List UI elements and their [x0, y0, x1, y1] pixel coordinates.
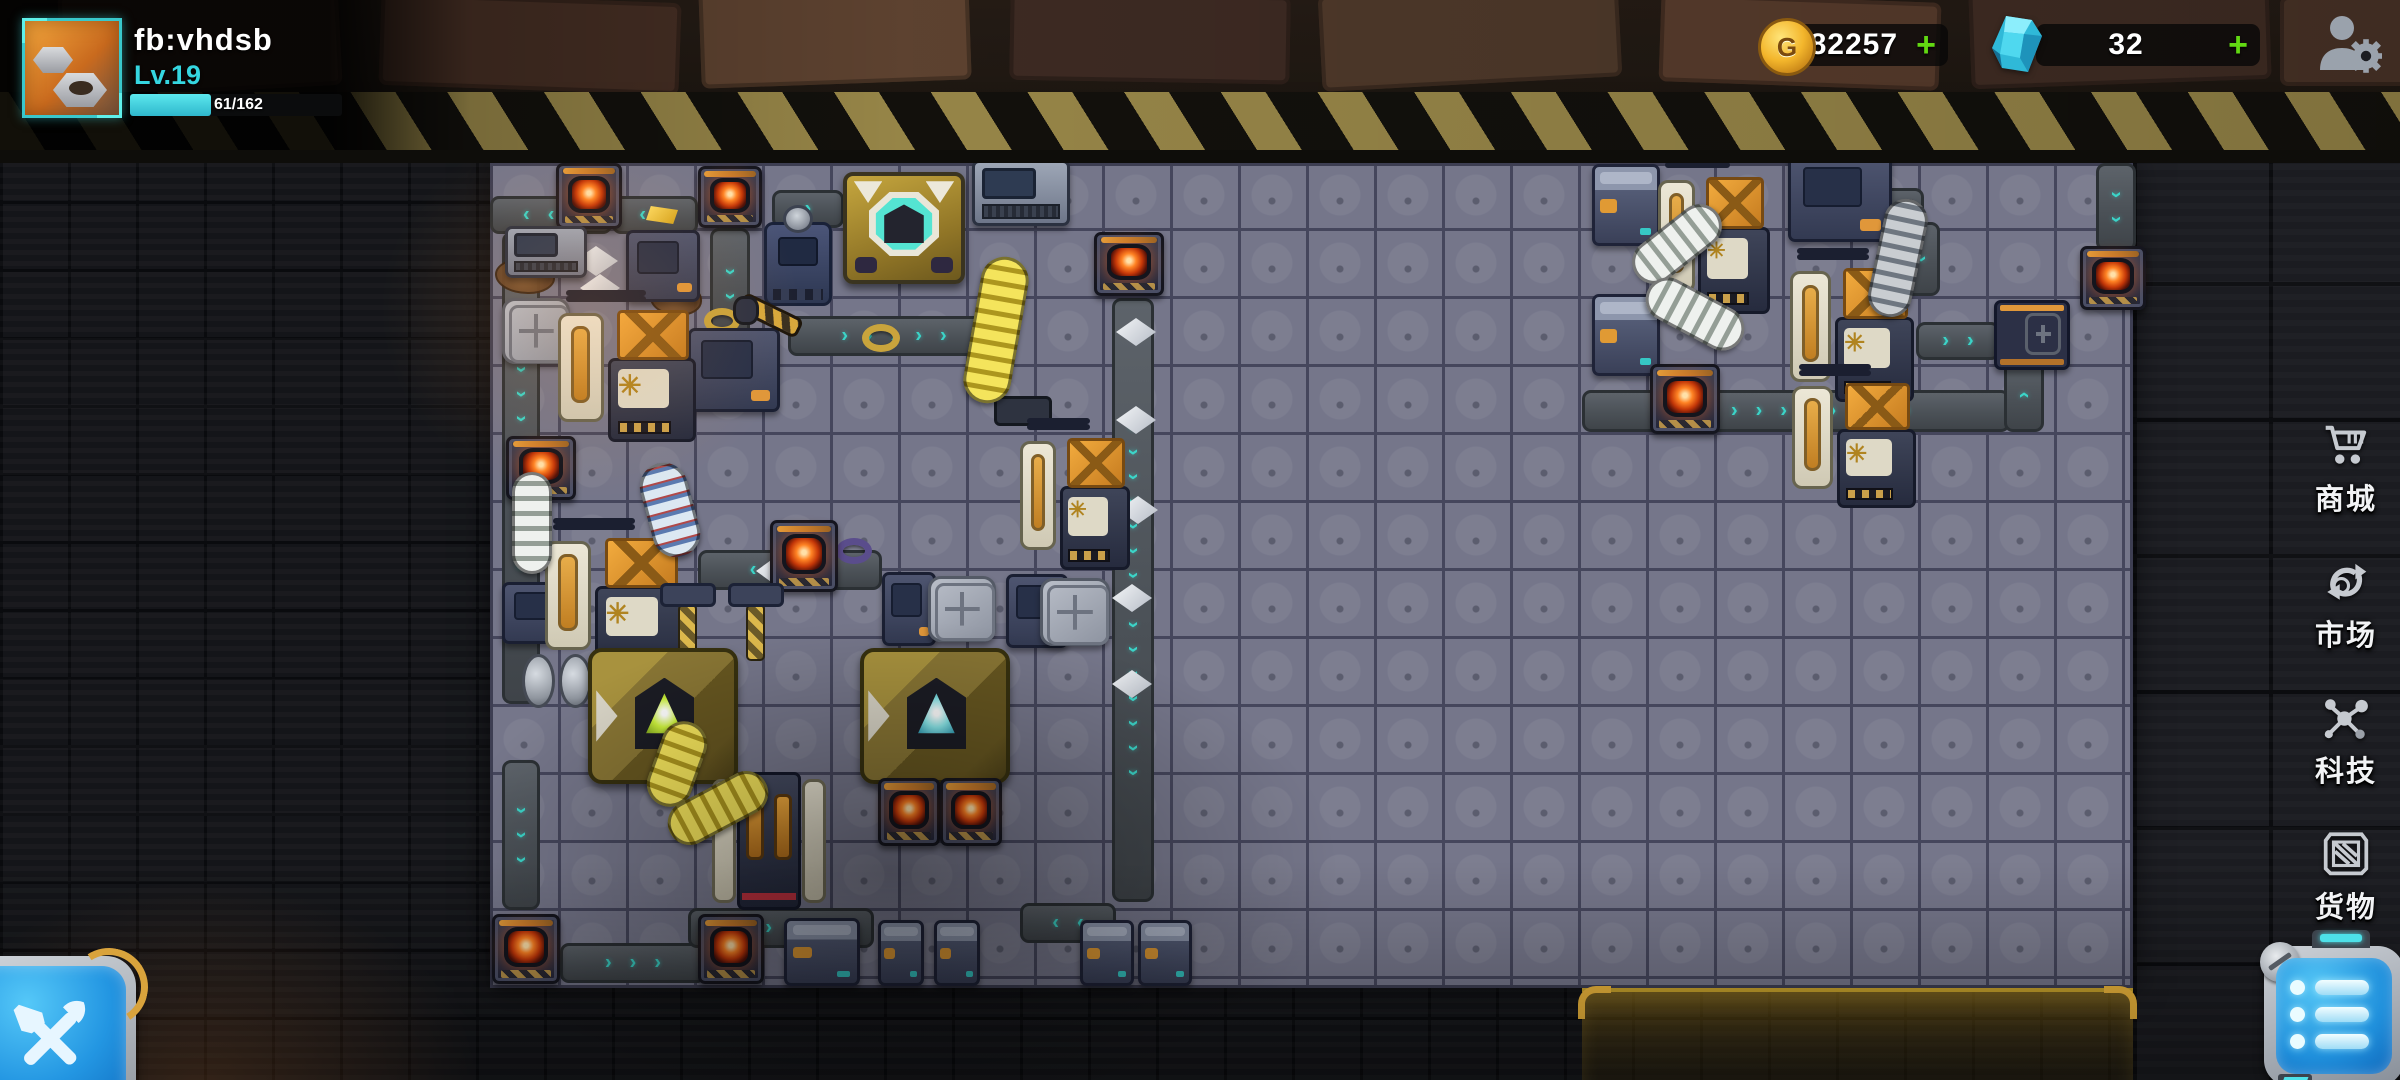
- avatar-frame-corner-icon: [97, 93, 122, 118]
- cabinet[interactable]: [972, 160, 1070, 226]
- smelter[interactable]: [556, 163, 622, 229]
- belt[interactable]: ›››: [502, 760, 540, 910]
- miner[interactable]: [784, 918, 860, 986]
- build-button[interactable]: [0, 956, 136, 1080]
- smelter[interactable]: [492, 914, 560, 984]
- menu-item-cargo[interactable]: 货物: [2298, 828, 2394, 926]
- avatar-frame-corner-icon: [22, 18, 47, 43]
- avatar-art: [33, 47, 73, 73]
- avatar-art: [69, 81, 93, 95]
- refinery[interactable]: [843, 172, 965, 284]
- storage[interactable]: [928, 576, 996, 642]
- belt[interactable]: ›››: [560, 943, 706, 983]
- belt[interactable]: ››: [1916, 322, 2000, 360]
- menu-item-tech[interactable]: 科技: [2298, 692, 2394, 790]
- smelter[interactable]: [940, 778, 1002, 846]
- task-list-button[interactable]: [2264, 946, 2400, 1080]
- add-gems-button[interactable]: +: [2216, 26, 2260, 65]
- cyan-chip-icon: [2278, 1074, 2312, 1080]
- tech-molecule-icon: [2321, 692, 2371, 742]
- button-tab: [2312, 930, 2370, 948]
- arm[interactable]: [733, 290, 809, 346]
- miner[interactable]: [878, 920, 924, 986]
- xp-text: 61/162: [214, 96, 263, 114]
- smelter[interactable]: [698, 914, 764, 984]
- gem-amount: 32: [2036, 28, 2216, 62]
- miner[interactable]: [1138, 920, 1192, 986]
- vault[interactable]: [1994, 300, 2070, 370]
- spring-white[interactable]: [512, 472, 552, 574]
- avatar[interactable]: [22, 18, 122, 118]
- miner[interactable]: [934, 920, 980, 986]
- hammer-wrench-icon: [0, 984, 102, 1080]
- smelter[interactable]: [878, 778, 940, 846]
- list-icon: [2290, 980, 2369, 1061]
- game-screen: ››››››››››››››››››››››››››››››››››››››››…: [0, 0, 2400, 1080]
- drillarm[interactable]: [728, 583, 784, 663]
- gem-counter: 32 +: [2036, 24, 2260, 66]
- cargo-crate-icon: [2321, 828, 2371, 878]
- miner[interactable]: [1080, 920, 1134, 986]
- account-settings-button[interactable]: [2316, 12, 2382, 74]
- gem-icon: [1988, 14, 2046, 78]
- menu-item-shop[interactable]: 商城: [2298, 420, 2394, 518]
- smelter[interactable]: [770, 520, 838, 592]
- storage[interactable]: [1040, 578, 1110, 646]
- cabinet[interactable]: [505, 226, 587, 278]
- gold-coin-icon: G: [1758, 18, 1816, 76]
- ring-purple[interactable]: [836, 538, 872, 564]
- market-exchange-icon: [2321, 556, 2371, 606]
- side-menu: 商城 市场 科技: [2298, 420, 2394, 964]
- shop-cart-icon: [2321, 420, 2371, 470]
- assembler[interactable]: ✳: [558, 290, 696, 442]
- menu-item-market[interactable]: 市场: [2298, 556, 2394, 654]
- drill-cyan[interactable]: [860, 648, 1010, 784]
- player-card[interactable]: fb:vhdsb Lv.19 61/162: [18, 14, 438, 124]
- smelter[interactable]: [698, 166, 762, 228]
- banner-bottom-edge: [0, 150, 2400, 163]
- smelter[interactable]: [1094, 232, 1164, 296]
- xp-bar: 61/162: [130, 94, 342, 116]
- ring[interactable]: [862, 324, 900, 352]
- machine[interactable]: [1788, 154, 1892, 242]
- player-name: fb:vhdsb: [134, 22, 273, 58]
- gold-counter: G 382257 +: [1778, 24, 1948, 66]
- assembler[interactable]: ✳: [1792, 364, 1916, 508]
- miner[interactable]: [1592, 164, 1660, 246]
- player-level: Lv.19: [134, 60, 201, 91]
- xp-bar-fill: [130, 94, 211, 116]
- assembler[interactable]: ✳: [1020, 418, 1130, 570]
- smelter[interactable]: [1650, 364, 1720, 434]
- belt[interactable]: ››: [2096, 163, 2136, 251]
- add-gold-button[interactable]: +: [1904, 26, 1948, 65]
- smelter[interactable]: [2080, 246, 2146, 310]
